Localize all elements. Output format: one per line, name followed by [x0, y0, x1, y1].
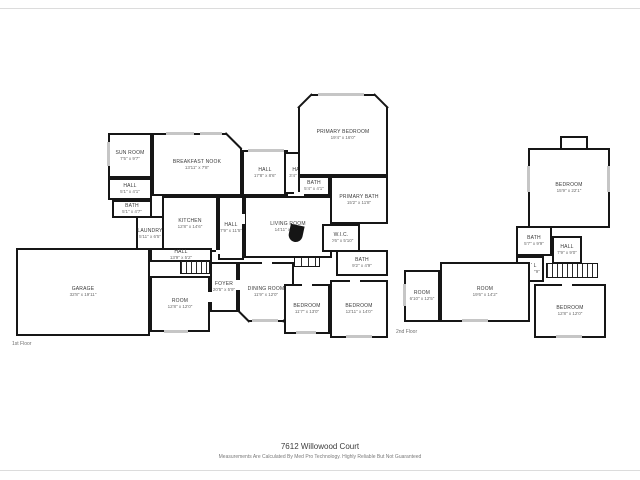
- room-garage: GARAGE 32'8" x 19'11": [16, 248, 150, 336]
- floor-label-2: 2nd Floor: [396, 329, 417, 335]
- window: [527, 166, 530, 192]
- room-bedroom-upper-2f: BEDROOM 15'9" x 22'1": [528, 148, 610, 228]
- address-title: 7612 Willowood Court: [0, 442, 640, 451]
- door-opening: [556, 254, 566, 258]
- room-dims-label: 7'5" x 9'7": [120, 156, 140, 161]
- stairs-first-floor: [180, 260, 210, 274]
- room-bedroom-lower-2f: BEDROOM 12'8" x 12'0": [534, 284, 606, 338]
- page-top-rule: [0, 8, 640, 9]
- room-dims-label: 6'10" x 12'5": [410, 296, 435, 301]
- window: [200, 132, 222, 135]
- room-bath-2f: BATH 5'7" x 9'9": [516, 226, 552, 256]
- room-sun-room: SUN ROOM 7'5" x 9'7": [108, 133, 152, 178]
- room-dims-label: 11'7" x 13'0": [295, 309, 319, 314]
- room-dims-label: 12'8" x 12'0": [558, 311, 583, 316]
- room-dims-label: 12'8" x 12'0": [168, 304, 193, 309]
- room-dims-label: 5'1" x 4'1": [120, 189, 140, 194]
- room-bath-west: BATH 5'1" x 4'7": [112, 200, 152, 218]
- room-center-2f: ROOM 19'6" x 14'2": [440, 262, 530, 322]
- door-opening: [208, 292, 212, 302]
- room-dims-label: 12'8" x 14'6": [178, 224, 203, 229]
- window: [556, 335, 582, 338]
- room-dims-label: 7'9" x 11'5": [220, 228, 242, 233]
- room-breakfast-nook: BREAKFAST NOOK 13'11" x 7'8": [152, 133, 242, 196]
- door-opening: [562, 282, 572, 286]
- entry-steps: [294, 257, 320, 267]
- room-dims-label: 5'1" x 4'7": [122, 209, 142, 214]
- window: [252, 319, 278, 322]
- window: [166, 132, 194, 135]
- room-dims-label: 12'11" x 14'0": [346, 309, 373, 314]
- door-opening: [236, 280, 240, 290]
- room-bedroom-1: BEDROOM 11'7" x 13'0": [284, 284, 330, 334]
- window: [164, 330, 188, 333]
- stairs-second-floor: [546, 263, 598, 278]
- room-flex: ROOM 12'8" x 12'0": [150, 276, 210, 332]
- room-primary-bedroom: PRIMARY BEDROOM 19'4" x 16'0": [298, 94, 388, 176]
- window: [296, 331, 316, 334]
- room-dims-label: 32'8" x 19'11": [70, 292, 97, 297]
- floor-label-1: 1st Floor: [12, 341, 31, 347]
- door-opening: [530, 264, 534, 274]
- floor-plan-canvas: SUN ROOM 7'5" x 9'7" BREAKFAST NOOK 13'1…: [0, 0, 640, 480]
- room-dims-label: 17'8" x 8'6": [254, 173, 276, 178]
- room-dims-label: 10'6" x 5'10": [329, 238, 354, 243]
- room-hall-west: HALL 5'1" x 4'1": [108, 178, 152, 200]
- window: [107, 142, 110, 166]
- room-dims-label: 15'9" x 22'1": [557, 188, 582, 193]
- room-left-2f: ROOM 6'10" x 12'5": [404, 270, 440, 322]
- room-dims-label: 5'11" x 6'5": [139, 234, 161, 239]
- room-bedroom-2: BEDROOM 12'11" x 14'0": [330, 280, 388, 338]
- room-dims-label: 5'4" x 4'1": [304, 186, 324, 191]
- door-opening: [302, 282, 312, 286]
- window: [403, 284, 406, 306]
- room-foyer: FOYER 20'5" x 5'9": [210, 262, 238, 312]
- room-bath-bedrooms: BATH 9'2" x 4'9": [336, 250, 388, 276]
- disclaimer-text: Measurements Are Calculated By Med Pro T…: [0, 454, 640, 460]
- page-bottom-rule: [0, 470, 640, 471]
- room-dims-label: 20'5" x 5'9": [213, 287, 235, 292]
- room-dims-label: 15'2" x 11'8": [347, 200, 371, 205]
- window: [346, 335, 372, 338]
- window: [318, 93, 364, 96]
- room-primary-bath: PRIMARY BATH 15'2" x 11'8": [330, 176, 388, 224]
- room-laundry: LAUNDRY 5'11" x 6'5": [136, 216, 164, 252]
- room-kitchen: KITCHEN 12'8" x 14'6": [162, 196, 218, 252]
- window: [462, 319, 488, 322]
- room-dims-label: 19'4" x 16'0": [331, 135, 356, 140]
- room-dims-label: 5'7" x 9'9": [524, 241, 544, 246]
- door-opening: [294, 192, 304, 196]
- door-opening: [241, 214, 245, 224]
- room-hall-2f: HALL 7'9" x 9'0": [552, 236, 582, 264]
- room-dims-label: 13'11" x 7'8": [185, 165, 209, 170]
- room-dims-label: 9'2" x 4'9": [352, 263, 372, 268]
- room-dims-label: 19'6" x 14'2": [473, 292, 498, 297]
- room-living-room: LIVING ROOM 14'11" x 17'9": [244, 196, 332, 258]
- window: [248, 149, 284, 152]
- room-hall-top: HALL 17'8" x 8'6": [242, 150, 288, 196]
- door-opening: [328, 232, 332, 242]
- door-opening: [350, 278, 360, 282]
- door-opening: [262, 260, 272, 264]
- window: [607, 166, 610, 192]
- door-opening: [216, 250, 228, 254]
- room-dims-label: 11'9" x 12'0": [254, 292, 278, 297]
